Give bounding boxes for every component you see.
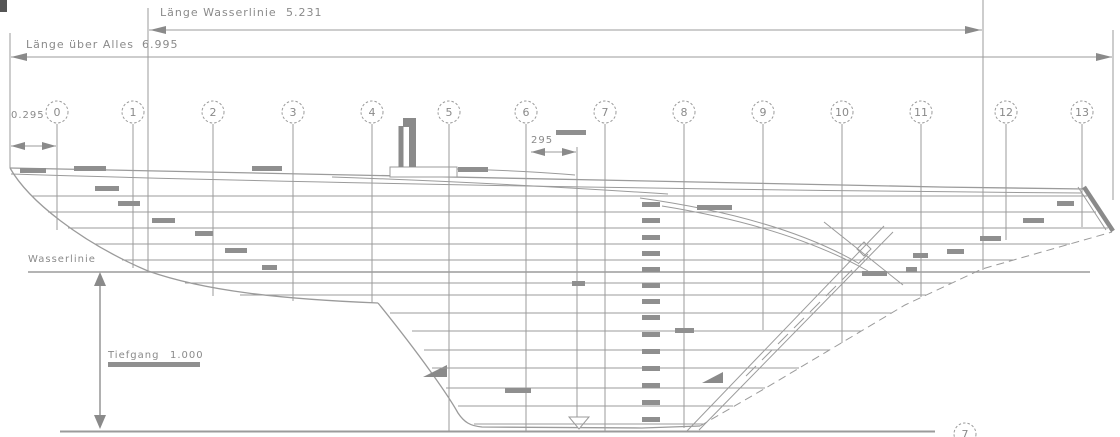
dim-draft-arrow-top	[94, 272, 106, 286]
station-number: 0	[54, 106, 61, 119]
dim-loa-label: Länge über Alles	[26, 38, 134, 51]
station-number: 1	[130, 106, 137, 119]
station-number: 8	[681, 106, 688, 119]
spline-dash-mark	[980, 236, 1001, 241]
centerboard-dash	[642, 315, 660, 320]
spline-dash-mark	[252, 166, 282, 171]
dim-mast-dash-mark	[556, 130, 586, 135]
dim-loa-value: 6.995	[142, 38, 179, 51]
station-number: 4	[369, 106, 376, 119]
centerboard-dash	[642, 202, 660, 207]
dim-mast-arrow-left	[531, 148, 545, 156]
spline-dash-mark	[225, 248, 247, 253]
spline-dash-mark	[74, 166, 106, 171]
dim-waterline-label: Länge Wasserlinie	[160, 6, 277, 19]
keel-fillet-forward	[423, 365, 447, 377]
centerboard-dash	[642, 400, 660, 405]
centerboard-dash	[642, 366, 660, 371]
spline-dash-mark	[913, 253, 928, 258]
spline-dash-mark	[862, 271, 887, 276]
transom-line-thick	[1084, 187, 1113, 231]
spline-dash-mark	[675, 328, 694, 333]
centerboard-dash	[642, 299, 660, 304]
keel-profile	[378, 303, 700, 428]
waterline-label: Wasserlinie	[28, 254, 96, 265]
dim-waterline-arrow-right	[965, 26, 981, 34]
dim-bow-arrow-left	[11, 142, 25, 150]
waterlines-group	[32, 196, 1108, 424]
centerboard-dash	[642, 349, 660, 354]
dim-bow-arrow-right	[42, 142, 56, 150]
station-number: 2	[210, 106, 217, 119]
draft-underline-bar	[108, 362, 200, 367]
spline-dash-mark	[572, 281, 585, 286]
spline-dash-mark	[95, 186, 119, 191]
spline-dash-mark	[1057, 201, 1074, 206]
keel-fillet-aft	[702, 372, 723, 383]
centerboard-dash	[642, 417, 660, 422]
draft-value: 1.000	[170, 350, 204, 361]
spline-dash-mark	[458, 167, 488, 172]
dim-draft-arrow-bottom	[94, 415, 106, 429]
centerboard-dash	[642, 332, 660, 337]
mast-step-base	[390, 167, 457, 177]
lines-plan-drawing: Länge Wasserlinie 5.231 Länge über Alles…	[0, 0, 1120, 437]
partial-station-number: 7	[962, 428, 969, 437]
spline-dash-mark	[118, 201, 140, 206]
centerboard-dash	[642, 283, 660, 288]
lines-plan-svg: Länge Wasserlinie 5.231 Länge über Alles…	[0, 0, 1120, 437]
station-number: 12	[999, 106, 1013, 119]
draft-label: Tiefgang	[107, 350, 159, 361]
mast-stub	[399, 118, 417, 167]
partial-station-circle-group: 7	[954, 423, 976, 437]
dim-loa-arrow-right	[1096, 53, 1112, 61]
spline-dash-mark	[195, 231, 213, 236]
spline-dash-mark	[906, 267, 917, 272]
dim-bow-value: 0.295	[11, 110, 45, 121]
spline-dash-mark	[152, 218, 175, 223]
spline-dash-mark	[947, 249, 964, 254]
corner-mark	[0, 0, 7, 12]
station-number: 6	[523, 106, 530, 119]
station-number: 10	[835, 106, 849, 119]
centerboard-dash	[642, 383, 660, 388]
dim-mast-arrow-right	[562, 148, 576, 156]
centerboard-dash	[642, 218, 660, 223]
dim-waterline-value: 5.231	[286, 6, 323, 19]
station-number: 13	[1075, 106, 1089, 119]
spline-dash-mark	[505, 388, 531, 393]
centerboard-dash	[642, 267, 660, 272]
station-number: 5	[446, 106, 453, 119]
spline-dash-mark	[20, 168, 46, 173]
spline-dash-mark	[262, 265, 277, 270]
spline-dash-mark	[697, 205, 732, 210]
counter-profile-dashed	[700, 232, 1112, 426]
dim-mast-value: 295	[531, 135, 553, 146]
spline-dash-mark	[1023, 218, 1044, 223]
station-number: 9	[760, 106, 767, 119]
dim-loa-arrow-left	[11, 53, 27, 61]
rudder-stock-line-1	[686, 226, 884, 432]
centerboard-dash-column	[642, 202, 660, 422]
station-number: 11	[914, 106, 928, 119]
buttock-curve-2	[662, 206, 868, 271]
centerboard-dash	[642, 251, 660, 256]
dim-waterline-arrow-left	[150, 26, 166, 34]
centerboard-dash	[642, 235, 660, 240]
station-number: 7	[602, 106, 609, 119]
station-number: 3	[290, 106, 297, 119]
